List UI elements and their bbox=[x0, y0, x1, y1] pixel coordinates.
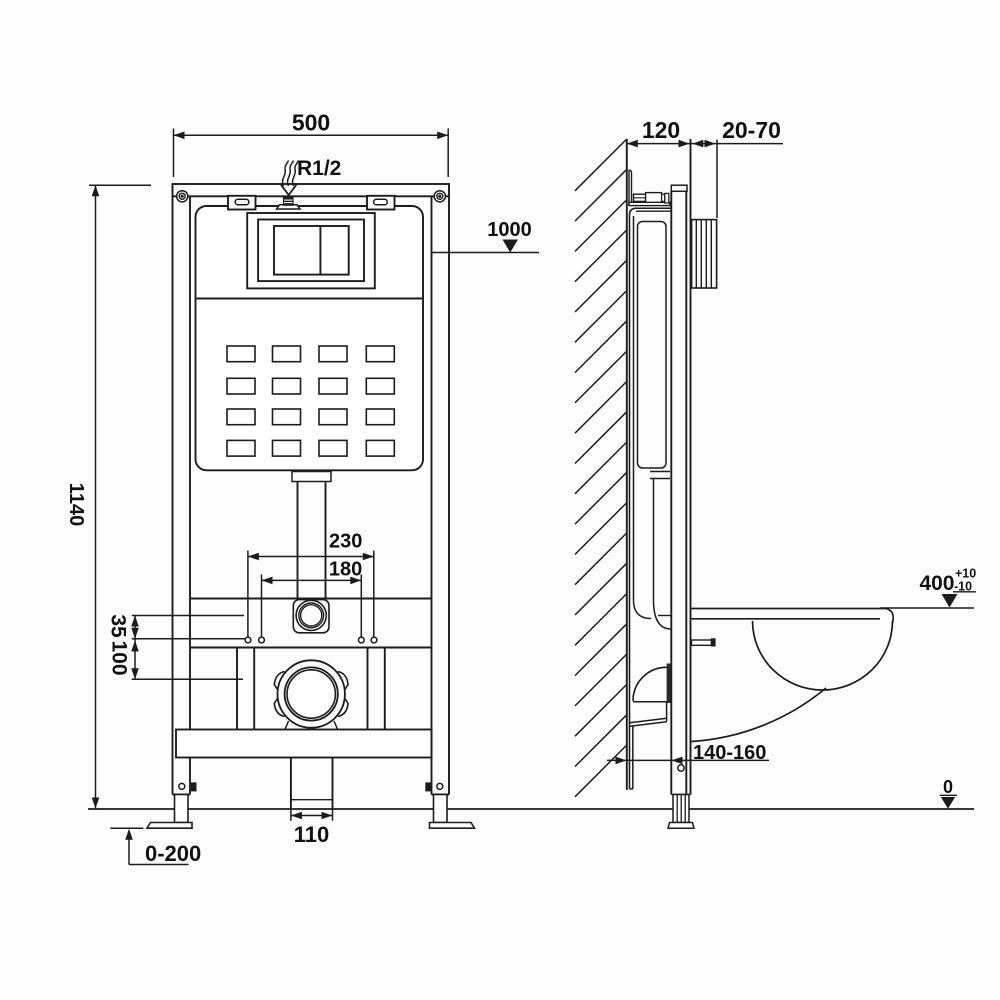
svg-text:180: 180 bbox=[329, 559, 362, 581]
svg-text:1140: 1140 bbox=[65, 483, 87, 526]
svg-text:230: 230 bbox=[329, 531, 362, 553]
svg-text:1000: 1000 bbox=[487, 219, 532, 241]
svg-text:140-160: 140-160 bbox=[693, 742, 766, 764]
svg-text:35: 35 bbox=[107, 614, 130, 638]
svg-text:400: 400 bbox=[919, 572, 954, 595]
svg-text:110: 110 bbox=[294, 822, 330, 847]
svg-text:0-200: 0-200 bbox=[145, 841, 201, 866]
svg-text:20-70: 20-70 bbox=[722, 117, 781, 143]
svg-text:+10: +10 bbox=[955, 567, 976, 581]
svg-text:R1/2: R1/2 bbox=[297, 157, 341, 180]
svg-text:0: 0 bbox=[943, 777, 953, 797]
svg-text:100: 100 bbox=[108, 640, 131, 675]
svg-text:500: 500 bbox=[292, 110, 330, 136]
svg-text:120: 120 bbox=[642, 117, 680, 143]
